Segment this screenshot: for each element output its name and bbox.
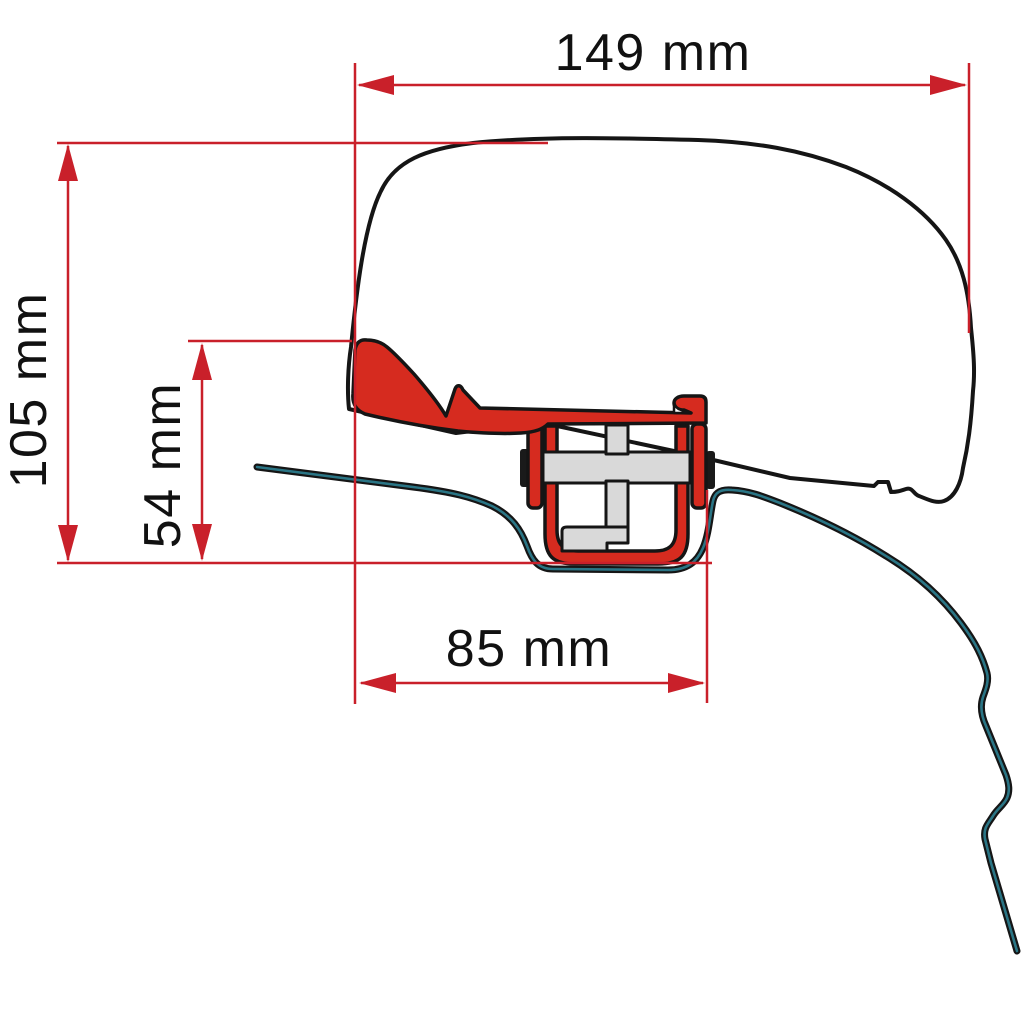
t-bolt-cross-plate xyxy=(543,452,690,483)
dim-label-total-height: 105 mm xyxy=(0,292,58,489)
left-side-plate xyxy=(528,424,542,508)
diagram-page: 149 mm 105 mm 54 mm 85 mm xyxy=(0,0,1024,1024)
dim-label-bottom-width: 85 mm xyxy=(446,620,612,678)
dim-label-bracket-height: 54 mm xyxy=(134,382,192,548)
right-side-plate xyxy=(692,424,706,508)
diagram-canvas: 149 mm 105 mm 54 mm 85 mm xyxy=(0,0,1024,1024)
t-bolt-upper-stem xyxy=(606,425,628,454)
dim-label-top-width: 149 mm xyxy=(555,24,752,82)
